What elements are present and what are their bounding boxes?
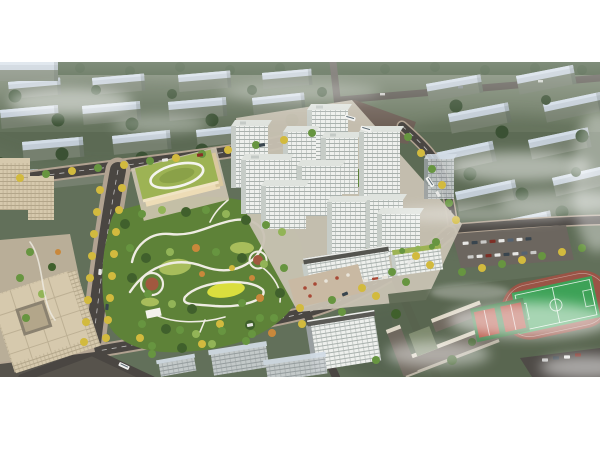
rendering-image xyxy=(0,62,600,377)
letterbox-bottom xyxy=(0,377,600,450)
playground-circle xyxy=(146,278,159,291)
rendering-svg xyxy=(0,62,600,377)
aerial-rendering-screenshot xyxy=(0,0,600,450)
letterbox-top xyxy=(0,0,600,62)
atmosphere-haze xyxy=(0,62,600,126)
